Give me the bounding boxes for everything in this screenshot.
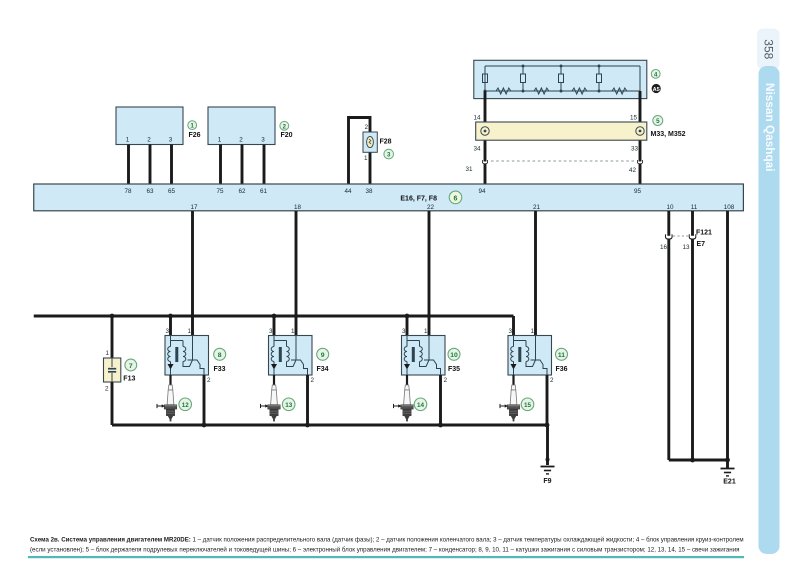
- svg-text:2: 2: [550, 377, 554, 384]
- svg-text:F28: F28: [380, 139, 392, 146]
- svg-text:31: 31: [465, 166, 473, 173]
- svg-text:62: 62: [238, 188, 246, 195]
- svg-text:3: 3: [169, 137, 173, 144]
- svg-text:(если установлен); 5 – блок де: (если установлен); 5 – блок держателя по…: [30, 545, 740, 553]
- svg-text:1: 1: [530, 328, 534, 335]
- svg-text:E16, F7, F8: E16, F7, F8: [400, 196, 437, 203]
- svg-text:13: 13: [682, 244, 690, 251]
- svg-text:63: 63: [146, 188, 154, 195]
- svg-text:358: 358: [761, 39, 775, 59]
- svg-text:3: 3: [402, 328, 406, 335]
- svg-text:1: 1: [126, 137, 130, 144]
- svg-text:1: 1: [364, 155, 368, 162]
- svg-text:F9: F9: [543, 478, 551, 485]
- svg-text:33: 33: [631, 146, 639, 153]
- svg-text:21: 21: [533, 204, 541, 211]
- svg-text:3: 3: [508, 328, 512, 335]
- svg-text:2: 2: [444, 377, 448, 384]
- svg-text:2: 2: [311, 377, 315, 384]
- svg-text:E21: E21: [723, 479, 736, 486]
- svg-text:42: 42: [629, 167, 637, 174]
- svg-text:12: 12: [182, 402, 190, 409]
- svg-text:78: 78: [124, 188, 132, 195]
- svg-text:2: 2: [105, 386, 109, 393]
- svg-text:75: 75: [216, 188, 224, 195]
- svg-text:F13: F13: [123, 376, 135, 383]
- svg-text:2: 2: [239, 137, 243, 144]
- svg-text:3: 3: [165, 328, 169, 335]
- svg-text:9: 9: [321, 352, 325, 359]
- svg-text:1: 1: [187, 328, 191, 335]
- svg-text:61: 61: [260, 188, 268, 195]
- svg-text:18: 18: [294, 204, 302, 211]
- svg-text:108: 108: [724, 204, 735, 211]
- svg-text:44: 44: [344, 188, 352, 195]
- svg-text:15: 15: [524, 402, 532, 409]
- svg-text:E7: E7: [697, 241, 706, 248]
- svg-text:M33, M352: M33, M352: [651, 131, 686, 138]
- svg-text:38: 38: [365, 188, 373, 195]
- svg-text:5: 5: [656, 118, 660, 125]
- svg-text:F33: F33: [214, 366, 226, 373]
- svg-text:Схема 2в. Система управления д: Схема 2в. Система управления двигателем …: [30, 536, 744, 544]
- svg-text:14: 14: [473, 115, 481, 122]
- svg-text:16: 16: [660, 244, 668, 251]
- svg-text:3: 3: [269, 328, 273, 335]
- svg-text:65: 65: [168, 188, 176, 195]
- svg-text:8: 8: [218, 352, 222, 359]
- svg-text:F35: F35: [448, 366, 460, 373]
- svg-text:3: 3: [261, 137, 265, 144]
- svg-text:1: 1: [105, 350, 109, 357]
- svg-text:3: 3: [387, 152, 391, 159]
- svg-text:F34: F34: [317, 366, 329, 373]
- svg-text:A5: A5: [653, 87, 660, 93]
- svg-text:F121: F121: [696, 230, 712, 237]
- svg-text:34: 34: [473, 146, 481, 153]
- svg-text:2: 2: [147, 137, 151, 144]
- svg-text:94: 94: [478, 188, 486, 195]
- svg-text:14: 14: [417, 402, 425, 409]
- svg-text:1: 1: [291, 328, 295, 335]
- svg-text:95: 95: [634, 188, 642, 195]
- svg-text:1: 1: [218, 137, 222, 144]
- svg-text:1: 1: [424, 328, 428, 335]
- svg-text:2: 2: [207, 377, 211, 384]
- svg-text:22: 22: [427, 204, 435, 211]
- svg-text:17: 17: [190, 204, 198, 211]
- svg-text:15: 15: [630, 115, 638, 122]
- svg-text:Nissan Qashqai: Nissan Qashqai: [763, 83, 777, 172]
- svg-text:11: 11: [691, 204, 698, 211]
- svg-text:F20: F20: [281, 132, 293, 139]
- svg-text:6: 6: [454, 195, 458, 202]
- svg-text:2: 2: [364, 124, 368, 131]
- svg-text:10: 10: [450, 352, 458, 359]
- svg-text:10: 10: [666, 204, 674, 211]
- svg-text:11: 11: [558, 352, 565, 359]
- svg-text:13: 13: [285, 402, 293, 409]
- svg-text:F26: F26: [189, 132, 201, 139]
- svg-text:F36: F36: [556, 366, 568, 373]
- svg-text:7: 7: [129, 363, 133, 370]
